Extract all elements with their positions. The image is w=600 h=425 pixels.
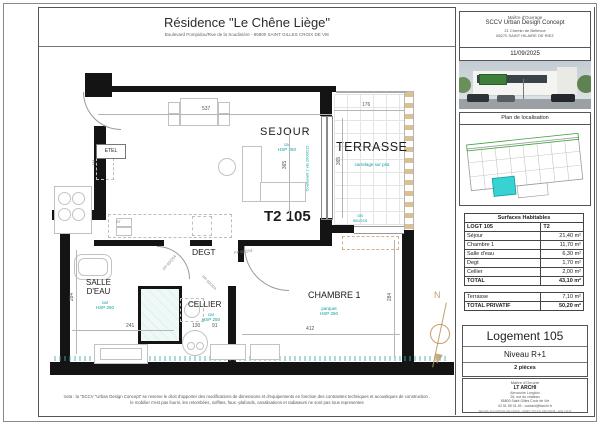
dim-sejour-width: 537 <box>202 106 210 112</box>
wall-right <box>402 230 414 366</box>
privatif-label: TOTAL PRIVATIF <box>465 302 541 311</box>
entry-door-arc <box>83 92 121 130</box>
sofa-seat <box>260 182 306 202</box>
window-chambre <box>354 226 404 234</box>
north-label: N <box>434 290 441 300</box>
dim-line <box>98 114 332 115</box>
sliding-door-leaf-2 <box>327 116 333 220</box>
coffee-table <box>218 158 236 176</box>
north-arrow-icon: N <box>424 290 458 374</box>
ann-chambre: parquet HSP 250 <box>314 306 344 317</box>
at-label: AT <box>116 220 121 225</box>
room-label-degt: DEGT <box>192 248 216 258</box>
row-label: Chambre 1 <box>465 241 541 250</box>
hob-burner <box>72 208 85 221</box>
drawing-sheet: Résidence "Le Chêne Liège" Boulevard Pom… <box>0 0 600 425</box>
chambre-dresser <box>210 344 246 360</box>
terrasse-floor <box>334 94 404 225</box>
nota-line-2: le mobilier n'est pas fourni, les retomb… <box>42 400 452 406</box>
ann-terrasse: carrelage sur plot <box>344 162 400 167</box>
privatif-value: 50,20 m² <box>541 302 584 311</box>
unit-title: Logement 105 <box>463 329 587 343</box>
project-address: Boulevard Pompidou/Rue de la Soudinière … <box>39 32 455 37</box>
appliance <box>192 216 212 236</box>
photo-tree <box>577 75 591 93</box>
row-label: Salle d'eau <box>465 250 541 259</box>
terrasse-edge <box>336 91 406 93</box>
drawing-date: 11/09/2025 <box>510 51 540 57</box>
sidebar: Maître d'Ouvrage SCCV Urban Design Conce… <box>455 7 594 415</box>
photo-pole <box>523 79 524 99</box>
dim-line <box>289 130 290 218</box>
row-value: 1,70 m² <box>541 259 584 268</box>
etel-label: ETEL <box>105 148 118 154</box>
dim-line <box>394 240 395 358</box>
fridge <box>96 158 114 180</box>
wall-sdb-top <box>94 240 164 246</box>
room-label-salle-deau: SALLE D'EAU <box>86 278 111 296</box>
title-block: Résidence "Le Chêne Liège" Boulevard Pom… <box>39 8 455 47</box>
chair <box>168 102 180 114</box>
row-label: Cellier <box>465 268 541 277</box>
ann-sejour: car HSP 250 <box>272 142 302 153</box>
architect-legal: SELARL AU CAPITAL DE 1000 € - SIRET 479 … <box>463 409 587 413</box>
row-value: 21,40 m² <box>541 232 584 241</box>
etel-closet: ETEL <box>96 144 126 159</box>
dim-line <box>72 330 174 331</box>
wall-degt-top <box>190 240 212 246</box>
chair <box>168 114 180 126</box>
unit-level: Niveau R+1 <box>463 346 587 359</box>
surfaces-type: T2 <box>541 223 584 232</box>
ann-window-ob: OB 900/215 <box>348 214 372 224</box>
chambre-dresser <box>250 344 280 360</box>
dining-table <box>180 98 218 126</box>
unit-rooms: 2 pièces <box>463 362 587 371</box>
location-plan-title: Plan de localisation <box>460 113 590 125</box>
dim-sdb-height: 284 <box>69 293 75 301</box>
hob-burner <box>58 192 71 205</box>
sofa-back <box>242 146 262 202</box>
wall-terrasse-upper <box>320 86 332 116</box>
chair <box>218 114 230 126</box>
row-value: 11,70 m² <box>541 241 584 250</box>
highlighted-unit <box>492 176 516 196</box>
dim-cellier-width: 130 <box>192 323 200 329</box>
dim-line <box>334 110 404 111</box>
window-sill-dashed <box>342 236 399 250</box>
room-label-sejour: SEJOUR <box>260 126 311 139</box>
wall-terrasse-bottom <box>332 225 354 233</box>
hob-burner <box>58 208 71 221</box>
sink-bowl <box>116 227 132 236</box>
architect-address: 26, rue du château 85800 Saint Gilles Cr… <box>463 395 587 408</box>
wall-top <box>108 86 336 92</box>
row-label: Degt <box>465 259 541 268</box>
photo-car <box>551 94 575 102</box>
terrasse-value: 7,10 m² <box>541 293 584 302</box>
photo-car <box>467 94 489 102</box>
ann-salle-deau: car HSP 250 <box>90 300 120 311</box>
surfaces-title: Surfaces Habitables <box>465 214 584 223</box>
row-value: 6,30 m² <box>541 250 584 259</box>
room-label-cellier: CELLIER <box>188 300 221 309</box>
dim-chambre-width: 412 <box>306 326 314 332</box>
door-tag-cellier: PP 63/204 <box>201 274 218 291</box>
dim-terrasse-height: 365 <box>336 157 342 165</box>
nota-block: nota : la "SCCV "Urban Design Concept" s… <box>42 394 452 407</box>
chair <box>218 102 230 114</box>
terrasse-balustrade <box>404 91 414 235</box>
room-label-terrasse: TERRASSE <box>336 140 407 154</box>
washing-machine <box>182 330 208 356</box>
shower <box>138 286 182 344</box>
photo-tree <box>459 77 471 93</box>
dim-sdb-width: 241 <box>126 323 134 329</box>
architect-box: Maître d'Oeuvre LT ARCHI Alexandre Langl… <box>462 378 588 413</box>
floor-plan: ETEL SEJOUR TERRASSE T2 105 CHAMBRE 1 SA… <box>42 58 454 396</box>
washer-knob <box>196 342 204 350</box>
owner-box: Maître d'Ouvrage SCCV Urban Design Conce… <box>459 11 591 49</box>
room-label-chambre: CHAMBRE 1 <box>308 290 361 300</box>
dim-line <box>242 334 400 335</box>
dim-cellier-width-2: 91 <box>212 323 218 329</box>
location-plan-map <box>461 125 589 203</box>
sdb-door-arc <box>157 246 190 279</box>
total-value: 43,10 m² <box>541 277 584 286</box>
unit-label: T2 105 <box>264 208 311 225</box>
fridge-label: FR <box>90 160 95 165</box>
photo-sign <box>479 74 507 85</box>
dim-terrasse-width: 176 <box>362 102 370 108</box>
ann-coulissant: Coulissant 2 vtx 2600/215 <box>306 136 311 200</box>
owner-address-2: 85270 SAINT HILAIRE DE RIEZ <box>460 33 590 38</box>
ann-cellier: car HSP 250 <box>196 312 226 323</box>
owner-name: SCCV Urban Design Concept <box>460 20 590 26</box>
terrasse-label: Terrasse <box>465 293 541 302</box>
photo-building-tower <box>557 67 577 95</box>
building-photo <box>459 61 591 109</box>
compass-arrowhead <box>433 353 443 364</box>
row-label: Séjour <box>465 232 541 241</box>
bathtub-inner <box>78 258 108 276</box>
total-label: TOTAL <box>465 277 541 286</box>
row-value: 2,00 m² <box>541 268 584 277</box>
location-plan-box: Plan de localisation <box>459 112 591 206</box>
vanity-basin <box>100 348 142 360</box>
project-title: Résidence "Le Chêne Liège" <box>39 15 455 30</box>
surfaces-logt: LOGT 105 <box>465 223 541 232</box>
dim-chambre-height: 284 <box>387 293 393 301</box>
surfaces-table: Surfaces Habitables LOGT 105 T2 Séjour21… <box>464 213 584 311</box>
hob-burner <box>72 192 85 205</box>
unit-box: Logement 105 Niveau R+1 2 pièces <box>462 325 588 377</box>
date-box: 11/09/2025 <box>459 47 591 61</box>
photo-car <box>497 95 515 102</box>
dim-sejour-height: 365 <box>282 161 288 169</box>
washer-knob <box>187 342 195 350</box>
dim-line <box>342 118 343 218</box>
dim-line <box>76 250 77 354</box>
